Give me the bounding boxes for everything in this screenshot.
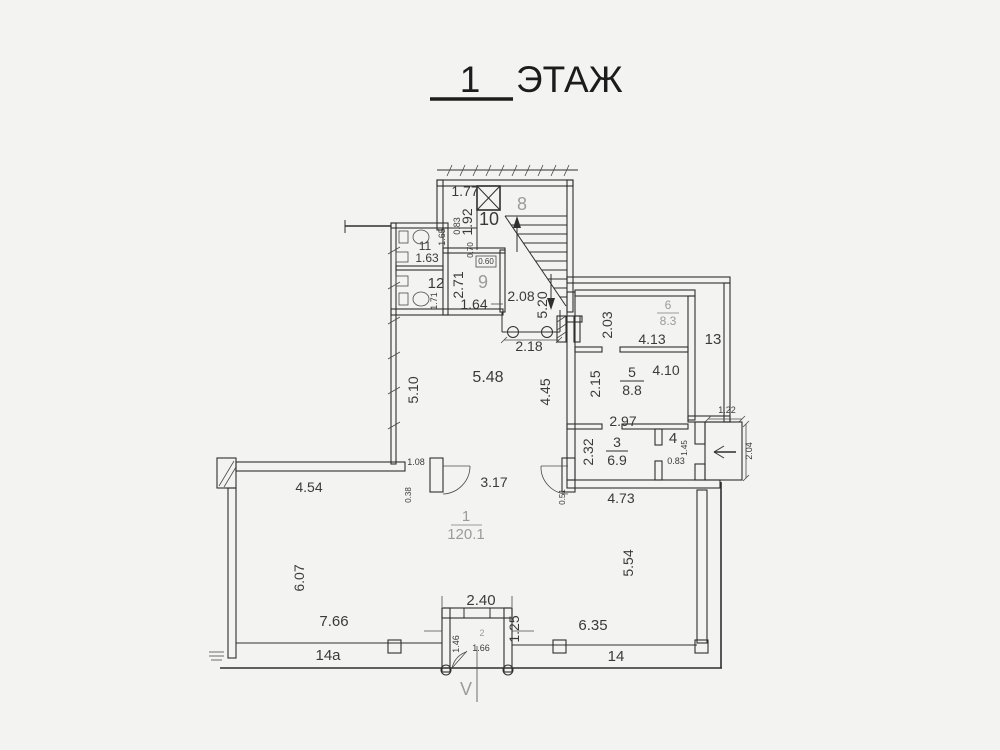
dim-1-65: 1.65 [437,228,447,246]
main-right-wall [697,490,707,643]
stair-landing [502,310,560,338]
entrance-mark-label: V [460,679,472,699]
dim-1-45: 1.45 [680,440,689,456]
dim-2-15: 2.15 [587,370,603,397]
dim-1-66: 1.66 [472,643,490,653]
column [553,640,566,653]
dim-1-08: 1.08 [407,457,425,467]
entrance-porch [705,416,749,481]
room-number-1: 1 [462,508,470,525]
dim-2-03: 2.03 [599,311,615,338]
dim-4-45: 4.45 [537,378,553,405]
dim-1-71: 1.71 [429,292,439,310]
room-area-1: 120.1 [447,526,485,543]
dim-4-54: 4.54 [295,479,322,495]
dim-5-54: 5.54 [620,549,636,576]
room-area-5: 8.8 [622,382,642,398]
room-number-14: 14 [608,648,625,665]
dim-5-20: 5.20 [534,291,550,318]
room-number-8: 8 [517,194,527,214]
dim-5-10: 5.10 [405,376,421,403]
dim-2-71: 2.71 [450,271,466,298]
column [388,640,401,653]
floor-number-label: 1 [460,59,481,100]
dim-1-77: 1.77 [451,183,478,199]
room-number-2: 2 [479,628,484,638]
room-number-14a: 14a [315,647,341,664]
floor-plan-drawing: 1 ЭТАЖ [0,0,1000,750]
main-room-walls [209,458,722,668]
dimension-labels: 1.77 10 1.92 0.83 8 11 1.63 1.65 12 1.71… [291,183,754,699]
dim-6-35: 6.35 [578,617,607,634]
left-wall-ticks [388,247,400,429]
dim-0-51: 0.51 [558,489,567,505]
main-left-wall [228,488,236,658]
door-swing-left [443,466,470,494]
dim-1-63: 1.63 [415,251,439,265]
dim-0-83-room4: 0.83 [667,456,685,466]
corridor-13-wall [688,296,695,420]
dim-1-64: 1.64 [460,296,487,312]
room-number-5: 5 [628,364,636,380]
dim-1-22: 1.22 [718,405,736,415]
dim-1-46: 1.46 [451,635,461,653]
room-number-10: 10 [479,209,499,229]
stair-treads [505,216,567,297]
dim-2-04: 2.04 [744,442,754,460]
right-outer-wall [724,283,730,422]
room-number-6: 6 [665,298,672,312]
dim-0-70: 0.70 [466,242,475,258]
dim-2-40: 2.40 [466,592,495,609]
dim-4-73: 4.73 [607,490,634,506]
dim-2-18: 2.18 [515,338,542,354]
toilet-divider-wall [396,266,443,270]
plan-title: 1 ЭТАЖ [430,59,623,100]
room-number-13: 13 [705,331,722,348]
floor-word-label: ЭТАЖ [516,59,623,100]
dim-6-07: 6.07 [291,564,307,591]
room-area-6: 8.3 [660,314,677,328]
room-number-9: 9 [478,272,488,292]
dim-0-60: 0.60 [478,257,494,266]
door-jamb-left [430,458,443,492]
dim-2-97: 2.97 [609,413,636,429]
dim-0-38: 0.38 [404,487,413,503]
room-number-4: 4 [669,430,677,447]
dim-2-08: 2.08 [507,288,534,304]
dim-7-66: 7.66 [319,613,348,630]
dim-5-48: 5.48 [472,369,503,386]
dim-2-32: 2.32 [580,438,596,465]
entrance-arrow-icon [714,446,736,458]
dim-0-83-top: 0.83 [452,217,462,235]
door-jamb-right [562,458,575,492]
wc-fixture-room12 [396,276,429,306]
pilaster [217,458,236,488]
wall-break-mark [209,652,224,660]
dim-1-25: 1.25 [506,615,522,642]
dim-leader-122 [705,416,745,422]
room-number-12: 12 [428,275,445,292]
room-area-3: 6.9 [607,452,627,468]
dim-4-13: 4.13 [638,331,665,347]
dim-4-10: 4.10 [652,362,679,378]
dim-3-17: 3.17 [480,474,507,490]
floor-plan-page: 1 ЭТАЖ [0,0,1000,750]
room-number-3: 3 [613,434,621,450]
left-outer-wall [391,223,396,464]
